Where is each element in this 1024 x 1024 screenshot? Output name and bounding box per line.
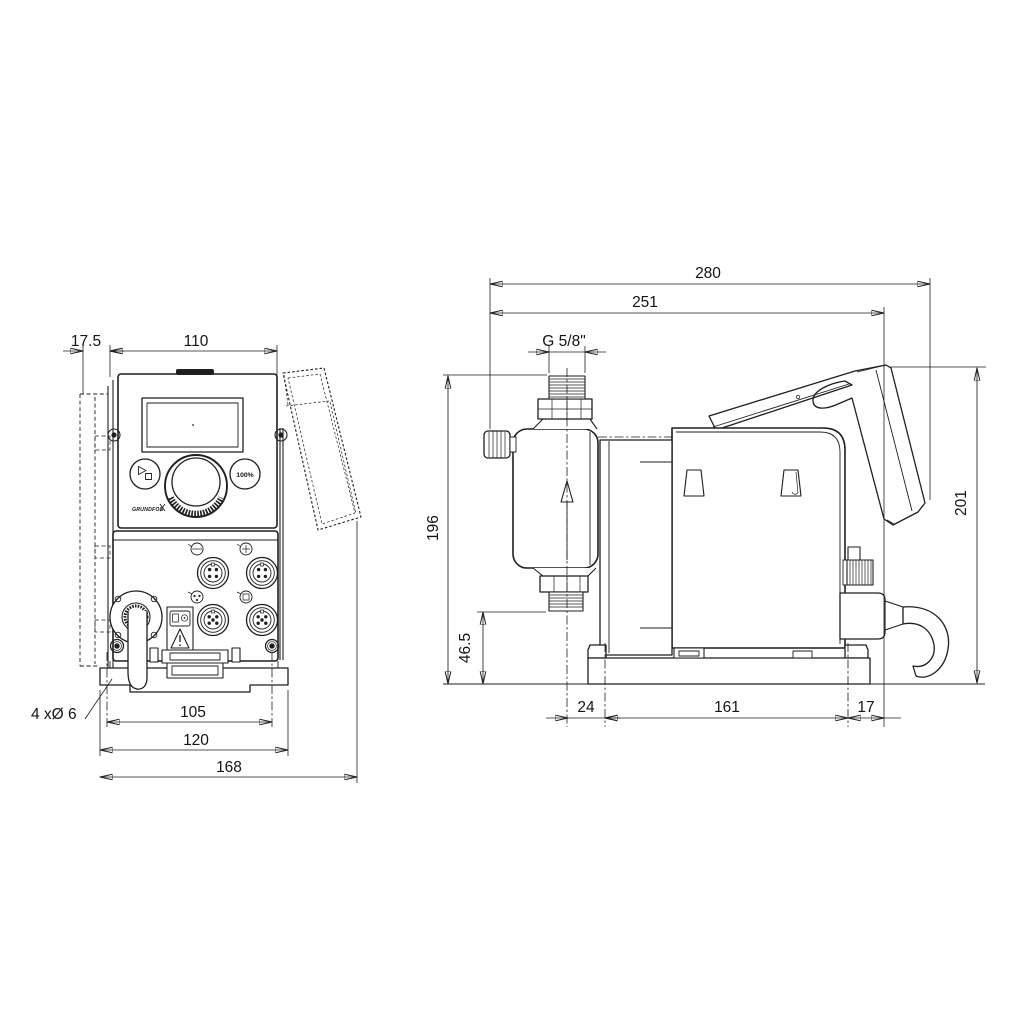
suction-union-nut (540, 576, 588, 592)
power-cable-front (128, 611, 147, 689)
percent-button-label: 100% (236, 472, 253, 479)
warning-label (167, 607, 193, 653)
cover-latch-tab (176, 369, 214, 375)
motor-housing (672, 428, 845, 648)
dim-overall-height: 201 (953, 490, 970, 516)
deaeration-valve[interactable] (484, 431, 516, 458)
dim-base-rear-offset: 17 (857, 699, 874, 716)
mounting-holes-note: 4 xØ 6 (31, 706, 77, 723)
dim-housing-width: 110 (184, 333, 209, 350)
cable-strain-relief (885, 601, 903, 630)
open-cover-front (283, 368, 361, 530)
svg-text:GRUNDFOS: GRUNDFOS (132, 507, 164, 513)
dosing-head (484, 376, 598, 611)
dim-overall-depth: 280 (695, 265, 721, 282)
holes-leader-line (85, 679, 112, 719)
side-view: 280 251 G 5/8" 196 46.5 201 (425, 265, 986, 727)
dim-height-to-connection: 196 (425, 515, 442, 541)
gland-thread (847, 560, 873, 585)
adapter-section (598, 437, 673, 655)
dim-base-front-offset: 24 (577, 699, 595, 716)
discharge-neck (533, 419, 597, 429)
dim-suction-height: 46.5 (457, 633, 474, 663)
suction-neck (533, 568, 596, 576)
dim-overall-width: 168 (216, 759, 242, 776)
dim-hole-spacing: 105 (180, 704, 206, 721)
dim-base-hole-spacing: 161 (714, 699, 740, 716)
dim-connection-thread: G 5/8" (542, 333, 585, 350)
dim-depth-to-back: 251 (632, 294, 658, 311)
dim-wall-offset: 17.5 (71, 333, 101, 350)
dim-plate-width: 120 (183, 732, 209, 749)
power-cable-side (903, 607, 949, 677)
front-view: 100% GRUNDFOS (31, 333, 361, 783)
control-panel: 100% GRUNDFOS (108, 369, 287, 528)
pump-dimensional-drawing: 100% GRUNDFOS (0, 0, 1024, 1024)
suction-thread (549, 592, 583, 611)
dimensional-drawing-page: 100% GRUNDFOS (0, 0, 1024, 1024)
wall-plate-hidden (80, 394, 110, 666)
discharge-union-nut (538, 399, 592, 419)
